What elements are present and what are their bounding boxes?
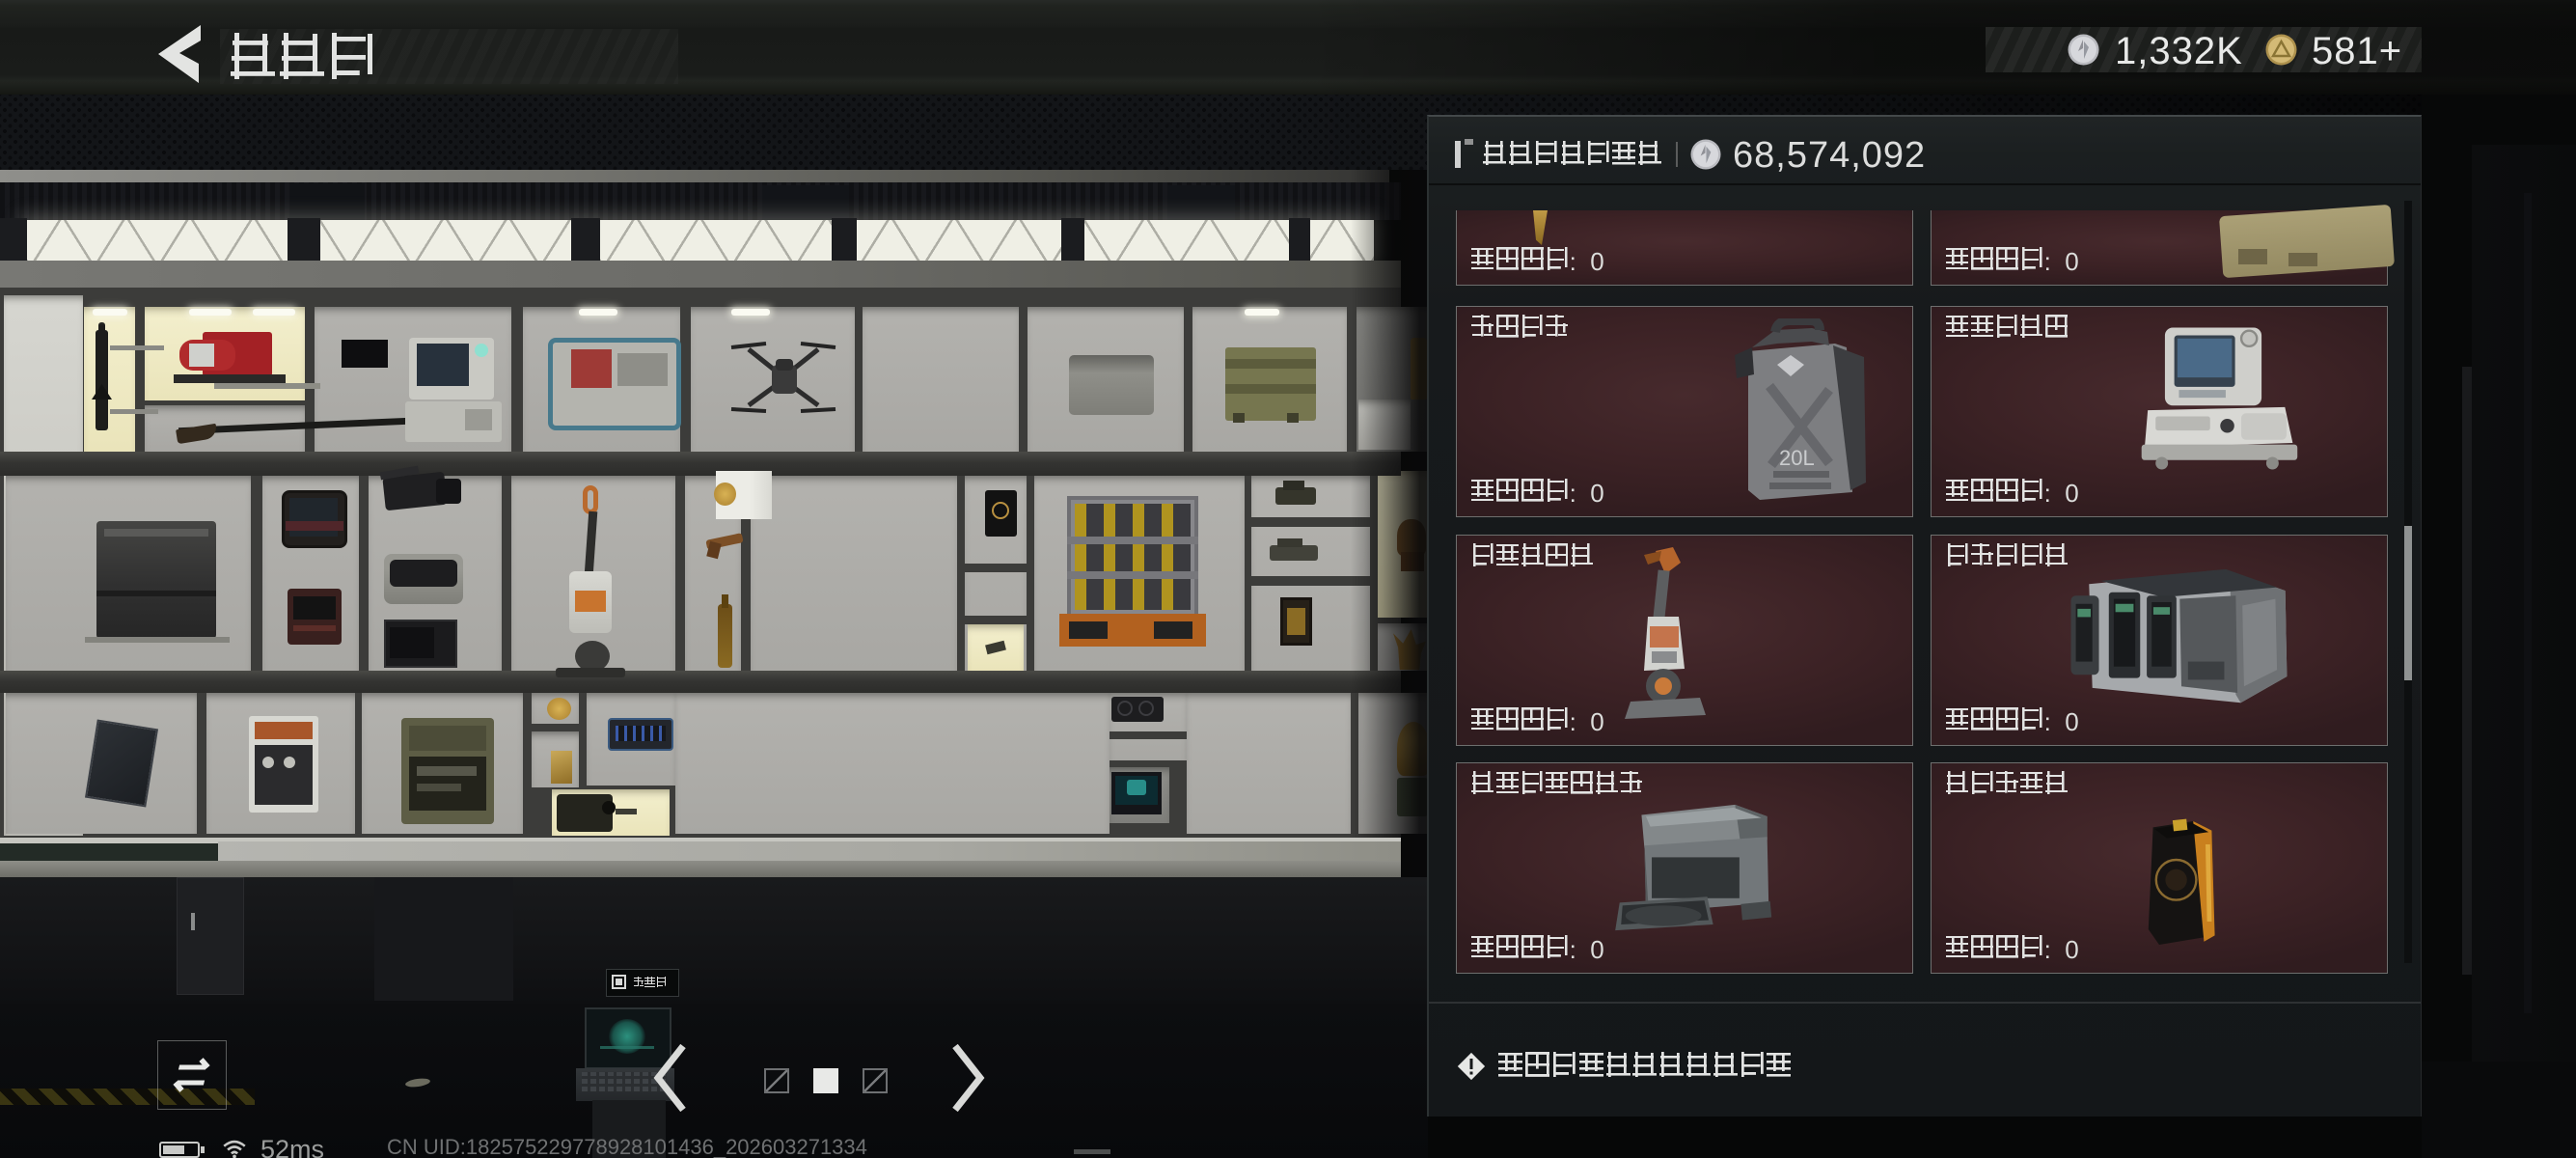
svg-text:20L: 20L	[1779, 446, 1815, 470]
